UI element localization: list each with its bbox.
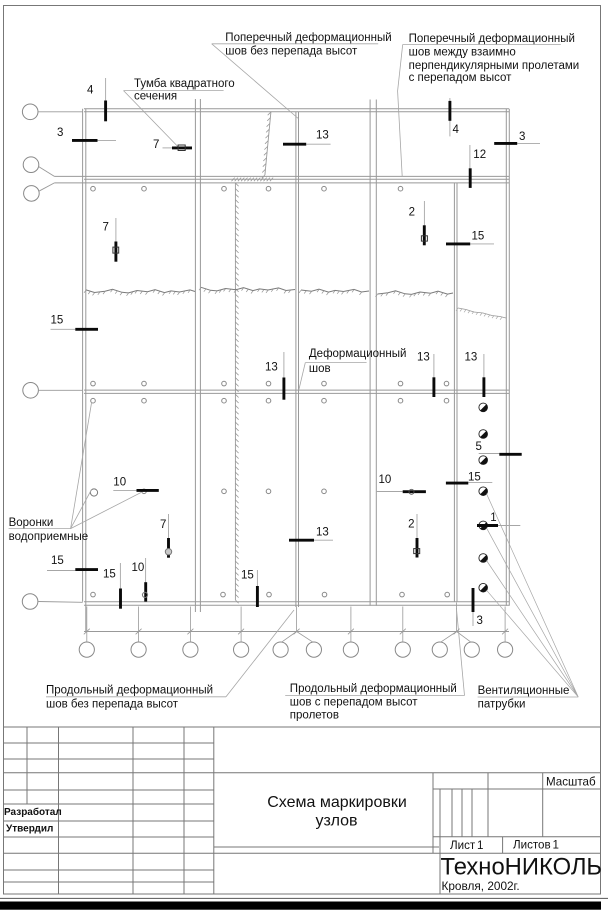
svg-text:Масштаб: Масштаб — [546, 776, 596, 789]
svg-text:шов с перепадом высот: шов с перепадом высот — [290, 697, 419, 709]
svg-text:10: 10 — [113, 477, 126, 489]
svg-text:7: 7 — [153, 139, 159, 151]
svg-text:Тумба квадратного: Тумба квадратного — [134, 78, 235, 90]
svg-text:10: 10 — [379, 474, 392, 486]
svg-text:Вентиляционные: Вентиляционные — [478, 685, 570, 697]
svg-text:3: 3 — [477, 615, 483, 627]
svg-text:сечения: сечения — [134, 90, 177, 102]
svg-text:7: 7 — [160, 519, 166, 531]
svg-text:Разработал: Разработал — [4, 806, 62, 818]
svg-text:перпендикулярными пролетами: перпендикулярными пролетами — [409, 60, 580, 72]
svg-text:Продольный деформационный: Продольный деформационный — [46, 685, 213, 697]
svg-text:13: 13 — [316, 526, 329, 538]
svg-text:с перепадом высот: с перепадом высот — [409, 72, 513, 84]
svg-text:15: 15 — [241, 569, 254, 581]
svg-text:2: 2 — [409, 207, 415, 219]
svg-text:Кровля, 2002г.: Кровля, 2002г. — [442, 879, 520, 893]
svg-text:Схема маркировки: Схема маркировки — [267, 794, 407, 811]
svg-text:водоприемные: водоприемные — [9, 531, 89, 543]
svg-text:4: 4 — [453, 124, 460, 136]
svg-text:1: 1 — [477, 839, 483, 852]
svg-text:13: 13 — [465, 352, 478, 364]
svg-text:шов между взаимно: шов между взаимно — [409, 47, 516, 59]
svg-text:ТехноНИКОЛЬ: ТехноНИКОЛЬ — [441, 854, 603, 881]
svg-text:Деформационный: Деформационный — [309, 348, 407, 360]
svg-text:7: 7 — [103, 222, 109, 234]
svg-text:13: 13 — [316, 130, 329, 142]
svg-text:Воронки: Воронки — [9, 517, 54, 529]
svg-text:15: 15 — [103, 569, 116, 581]
svg-text:Утвердил: Утвердил — [6, 824, 53, 835]
svg-text:Поперечный деформационный: Поперечный деформационный — [225, 32, 391, 44]
svg-text:патрубки: патрубки — [478, 699, 526, 711]
svg-text:шов: шов — [309, 363, 331, 375]
svg-text:13: 13 — [417, 352, 430, 364]
svg-text:3: 3 — [57, 127, 63, 139]
svg-text:шов без перепада высот: шов без перепада высот — [46, 699, 179, 711]
svg-text:Лист: Лист — [450, 839, 476, 852]
svg-text:2: 2 — [408, 519, 414, 531]
svg-text:1: 1 — [553, 839, 559, 852]
svg-text:15: 15 — [51, 315, 64, 327]
svg-text:пролетов: пролетов — [290, 710, 339, 722]
svg-text:15: 15 — [472, 231, 485, 243]
svg-text:15: 15 — [468, 472, 481, 484]
svg-text:10: 10 — [132, 562, 145, 574]
svg-text:узлов: узлов — [315, 813, 357, 830]
svg-text:3: 3 — [519, 131, 525, 143]
svg-text:1: 1 — [490, 512, 496, 524]
svg-text:4: 4 — [87, 85, 94, 97]
svg-text:Продольный деформационный: Продольный деформационный — [290, 683, 457, 695]
svg-text:5: 5 — [476, 441, 482, 453]
svg-text:15: 15 — [51, 555, 64, 567]
svg-text:Поперечный деформационный: Поперечный деформационный — [409, 33, 575, 45]
svg-text:12: 12 — [473, 149, 486, 161]
svg-text:Листов: Листов — [513, 839, 551, 852]
svg-text:13: 13 — [265, 362, 278, 374]
svg-text:шов без перепада высот: шов без перепада высот — [225, 45, 358, 57]
